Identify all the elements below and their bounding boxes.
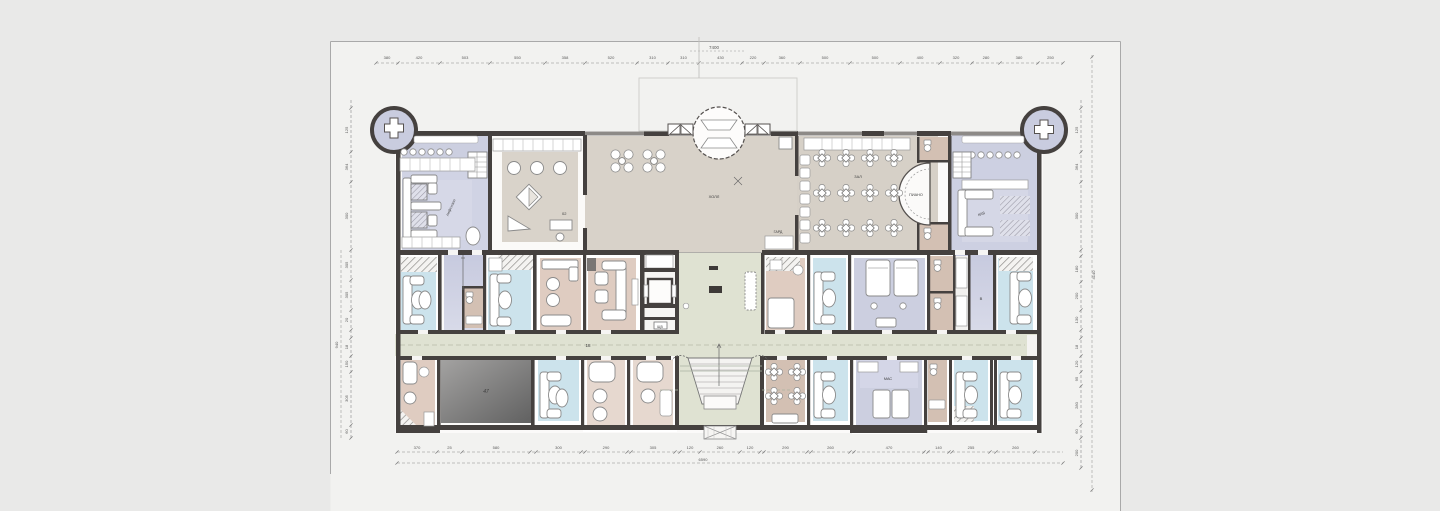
svg-text:280: 280 <box>983 55 990 60</box>
svg-text:358: 358 <box>562 55 569 60</box>
svg-text:47: 47 <box>483 389 489 395</box>
svg-text:200: 200 <box>1074 292 1079 299</box>
svg-text:120: 120 <box>1074 360 1079 367</box>
svg-text:280: 280 <box>1074 401 1079 408</box>
svg-text:В: В <box>980 296 983 301</box>
svg-text:ХОЛЛ: ХОЛЛ <box>709 194 720 199</box>
svg-text:6590: 6590 <box>699 457 709 462</box>
svg-text:290: 290 <box>782 445 789 450</box>
svg-text:25: 25 <box>447 445 452 450</box>
svg-text:125: 125 <box>344 126 349 133</box>
svg-text:500: 500 <box>822 55 829 60</box>
svg-text:4140: 4140 <box>1091 270 1096 280</box>
svg-text:320: 320 <box>953 55 960 60</box>
svg-text:370: 370 <box>414 445 421 450</box>
svg-text:550: 550 <box>514 55 521 60</box>
svg-text:500: 500 <box>872 55 879 60</box>
svg-text:95: 95 <box>1074 376 1079 381</box>
svg-text:18: 18 <box>1074 344 1079 349</box>
svg-text:220: 220 <box>750 55 757 60</box>
svg-text:260: 260 <box>827 445 834 450</box>
svg-text:360: 360 <box>779 55 786 60</box>
svg-text:140: 140 <box>935 445 942 450</box>
svg-text:200: 200 <box>1074 449 1079 456</box>
svg-text:125: 125 <box>1074 126 1079 133</box>
svg-text:300: 300 <box>344 212 349 219</box>
svg-text:255: 255 <box>968 445 975 450</box>
svg-text:150: 150 <box>344 360 349 367</box>
svg-text:60: 60 <box>344 429 349 434</box>
svg-text:130: 130 <box>1074 316 1079 323</box>
svg-text:420: 420 <box>416 55 423 60</box>
svg-text:305: 305 <box>344 261 349 268</box>
svg-text:18: 18 <box>344 344 349 349</box>
svg-text:02: 02 <box>562 211 567 216</box>
svg-text:ПИАНО: ПИАНО <box>909 193 923 197</box>
svg-text:364: 364 <box>344 163 349 170</box>
svg-text:260: 260 <box>717 445 724 450</box>
svg-text:20: 20 <box>344 317 349 322</box>
svg-text:580: 580 <box>493 445 500 450</box>
svg-text:120: 120 <box>747 445 754 450</box>
svg-text:300: 300 <box>555 445 562 450</box>
svg-text:290: 290 <box>603 445 610 450</box>
svg-text:380: 380 <box>1016 55 1023 60</box>
svg-text:940: 940 <box>334 341 339 348</box>
svg-text:310: 310 <box>680 55 687 60</box>
svg-text:18: 18 <box>585 343 591 348</box>
svg-text:ГАРД: ГАРД <box>774 230 783 234</box>
svg-text:430: 430 <box>717 55 724 60</box>
svg-text:7400: 7400 <box>709 45 720 50</box>
svg-text:364: 364 <box>1074 163 1079 170</box>
svg-text:305: 305 <box>650 445 657 450</box>
svg-text:МАС: МАС <box>884 377 893 381</box>
svg-text:400: 400 <box>917 55 924 60</box>
svg-text:310: 310 <box>649 55 656 60</box>
svg-text:ЩВ: ЩВ <box>657 325 663 329</box>
svg-text:305: 305 <box>344 394 349 401</box>
svg-text:305: 305 <box>344 291 349 298</box>
svg-text:250: 250 <box>1047 55 1054 60</box>
svg-text:260: 260 <box>1012 445 1019 450</box>
svg-text:520: 520 <box>608 55 615 60</box>
svg-text:ЗАЛ: ЗАЛ <box>854 175 862 179</box>
svg-text:120: 120 <box>687 445 694 450</box>
svg-text:300: 300 <box>1074 212 1079 219</box>
svg-text:60: 60 <box>1074 429 1079 434</box>
svg-text:503: 503 <box>462 55 469 60</box>
svg-text:180: 180 <box>1074 265 1079 272</box>
svg-text:470: 470 <box>886 445 893 450</box>
svg-text:380: 380 <box>384 55 391 60</box>
